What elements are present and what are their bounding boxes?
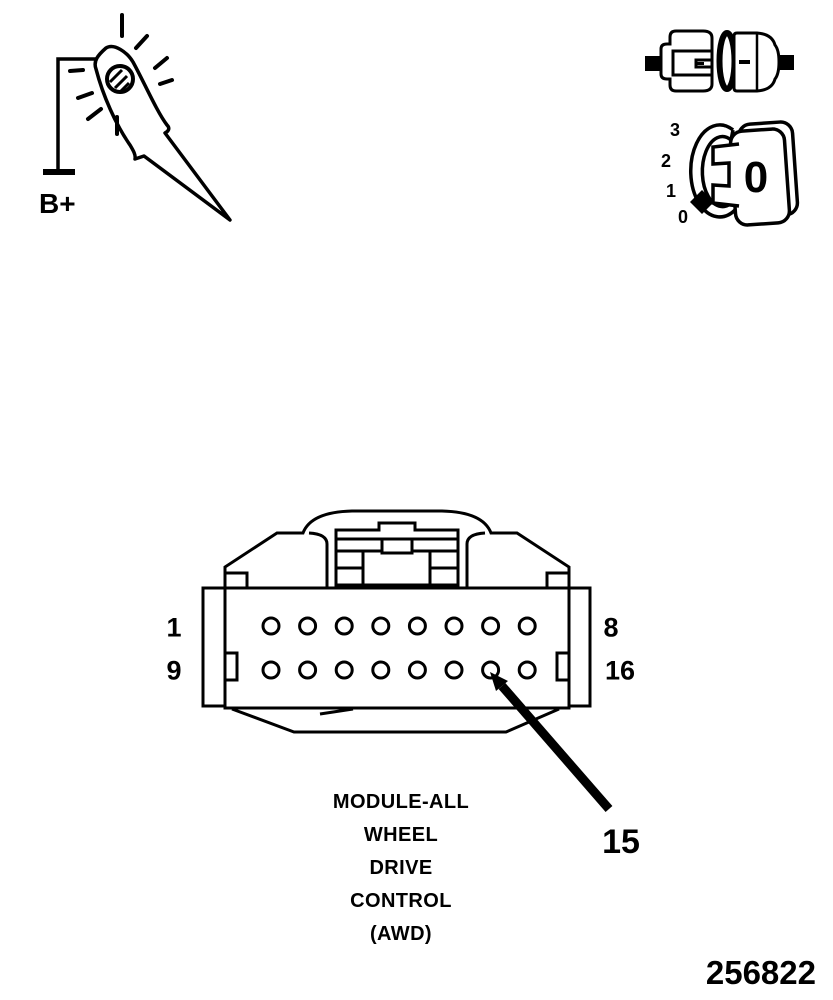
pin-hole-13 [409,662,425,678]
awd-module-connector [203,511,590,732]
connector-outline [225,511,569,708]
caption-line-2: WHEEL [261,819,541,852]
pin-hole-8 [519,618,535,634]
pin-hole-7 [483,618,499,634]
pin-hole-1 [263,618,279,634]
key-position-label-1: 1 [666,182,676,200]
right-shoulder-inner-edge [467,533,485,588]
pin-hole-5 [409,618,425,634]
right-mount-ear [569,588,590,706]
left-index-notch [225,653,237,680]
left-shoulder-step [225,573,247,588]
figure-canvas: B+ 3 2 1 0 0 1 8 9 16 15 MODULE-ALL WHEE… [0,0,833,1000]
pin-hole-9 [263,662,279,678]
pin-label-8: 8 [603,615,618,642]
latch-assembly [336,523,458,588]
key-position-label-3: 3 [670,121,680,139]
pin-hole-10 [300,662,316,678]
battery-positive-label: B+ [39,190,76,218]
pin-15-callout-label: 15 [602,825,640,859]
right-shoulder-step [547,573,569,588]
key-position-label-0: 0 [678,208,688,226]
caption-line-4: CONTROL [261,885,541,918]
pin-label-16: 16 [605,658,635,685]
pin-hole-3 [336,618,352,634]
pin-hole-14 [446,662,462,678]
right-index-notch [557,653,569,680]
disconnect-connector-icon [645,31,794,91]
right-wire-stub [779,55,794,70]
caption-line-1: MODULE-ALL [261,786,541,819]
pin-hole-4 [373,618,389,634]
left-shoulder-inner-edge [309,533,327,588]
pin-hole-2 [300,618,316,634]
bottom-skirt-detail [320,709,353,714]
connector-seal-ring [720,33,735,89]
key-face-marking: 0 [744,156,768,200]
left-mount-ear [203,588,225,706]
caption-line-5: (AWD) [261,918,541,951]
caption-line-3: DRIVE [261,852,541,885]
bottom-skirt [232,709,559,732]
pin-label-1: 1 [166,615,181,642]
pin-hole-12 [373,662,389,678]
pin-grid [263,618,535,678]
pin-hole-11 [336,662,352,678]
key-position-label-2: 2 [661,152,671,170]
pin-label-9: 9 [166,658,181,685]
connector-caption: MODULE-ALL WHEEL DRIVE CONTROL (AWD) [261,786,541,951]
key-blade-notch [713,144,739,206]
figure-number: 256822 [660,956,816,989]
pin-hole-6 [446,618,462,634]
pin-hole-16 [519,662,535,678]
